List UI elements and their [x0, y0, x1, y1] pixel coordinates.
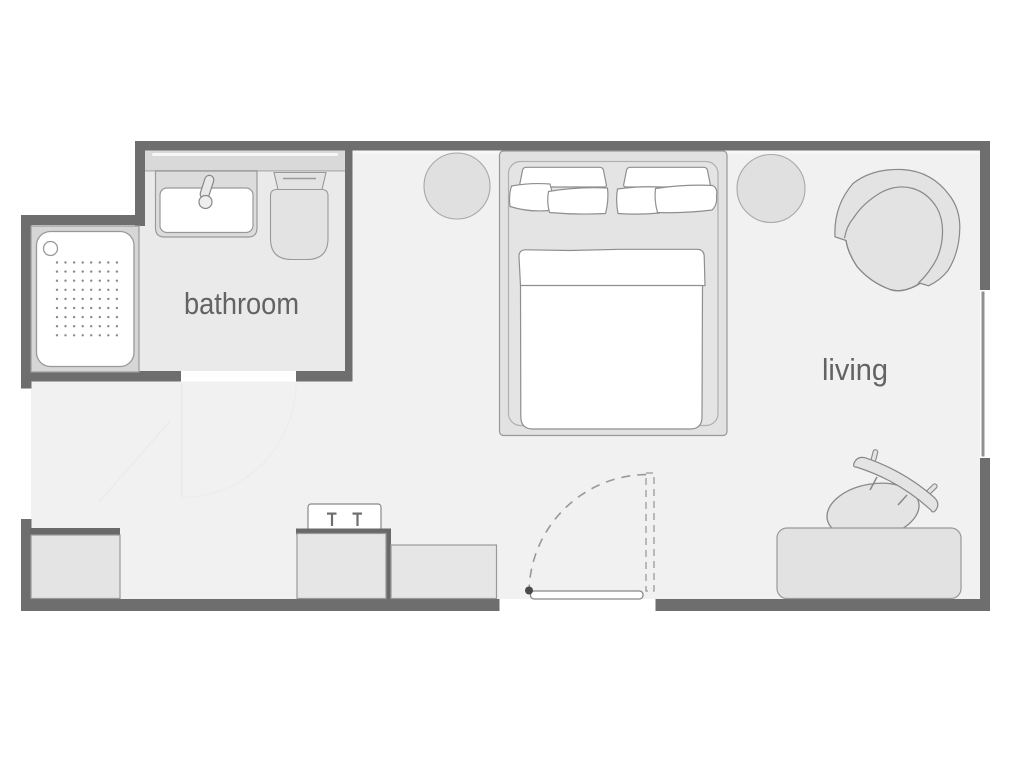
svg-text:living: living	[822, 352, 888, 387]
svg-text:bathroom: bathroom	[184, 286, 299, 321]
